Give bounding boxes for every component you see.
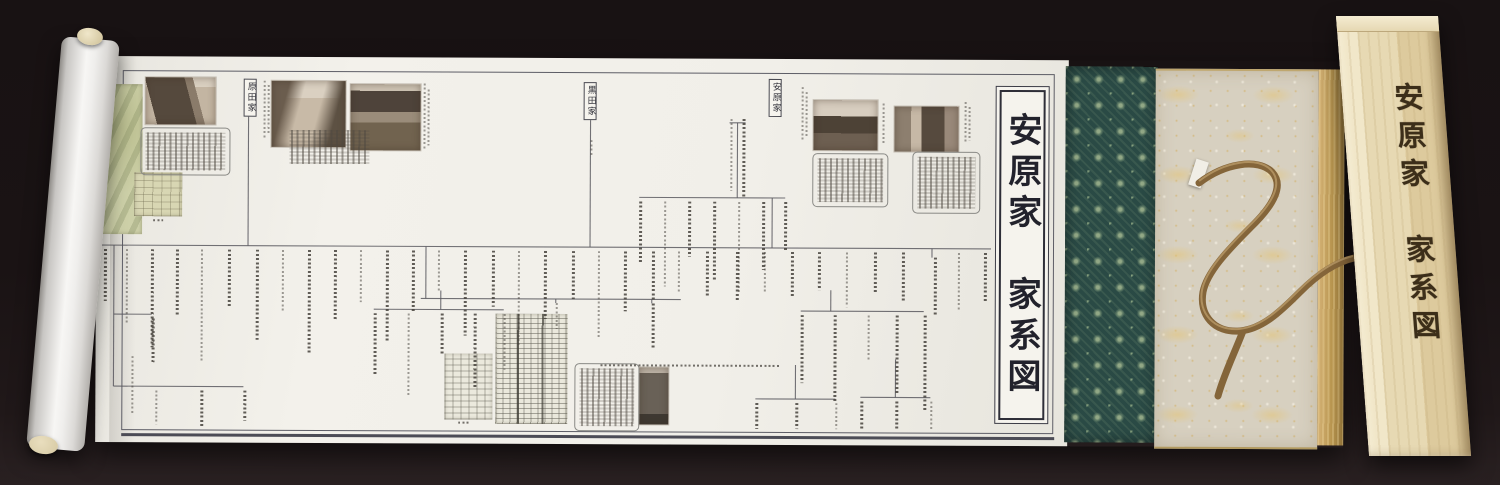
cord-tail: [1218, 331, 1243, 396]
hanging-cord: [0, 0, 1500, 485]
cord-loop: [1199, 164, 1354, 331]
photograph-of-hanging-scroll: 原田家 黒田家 安原家 安原家 家系図 安原家 家系図: [0, 0, 1500, 485]
cord-highlight: [1199, 162, 1353, 329]
box-calligraphy-title: 安原家 家系図: [1387, 82, 1453, 422]
